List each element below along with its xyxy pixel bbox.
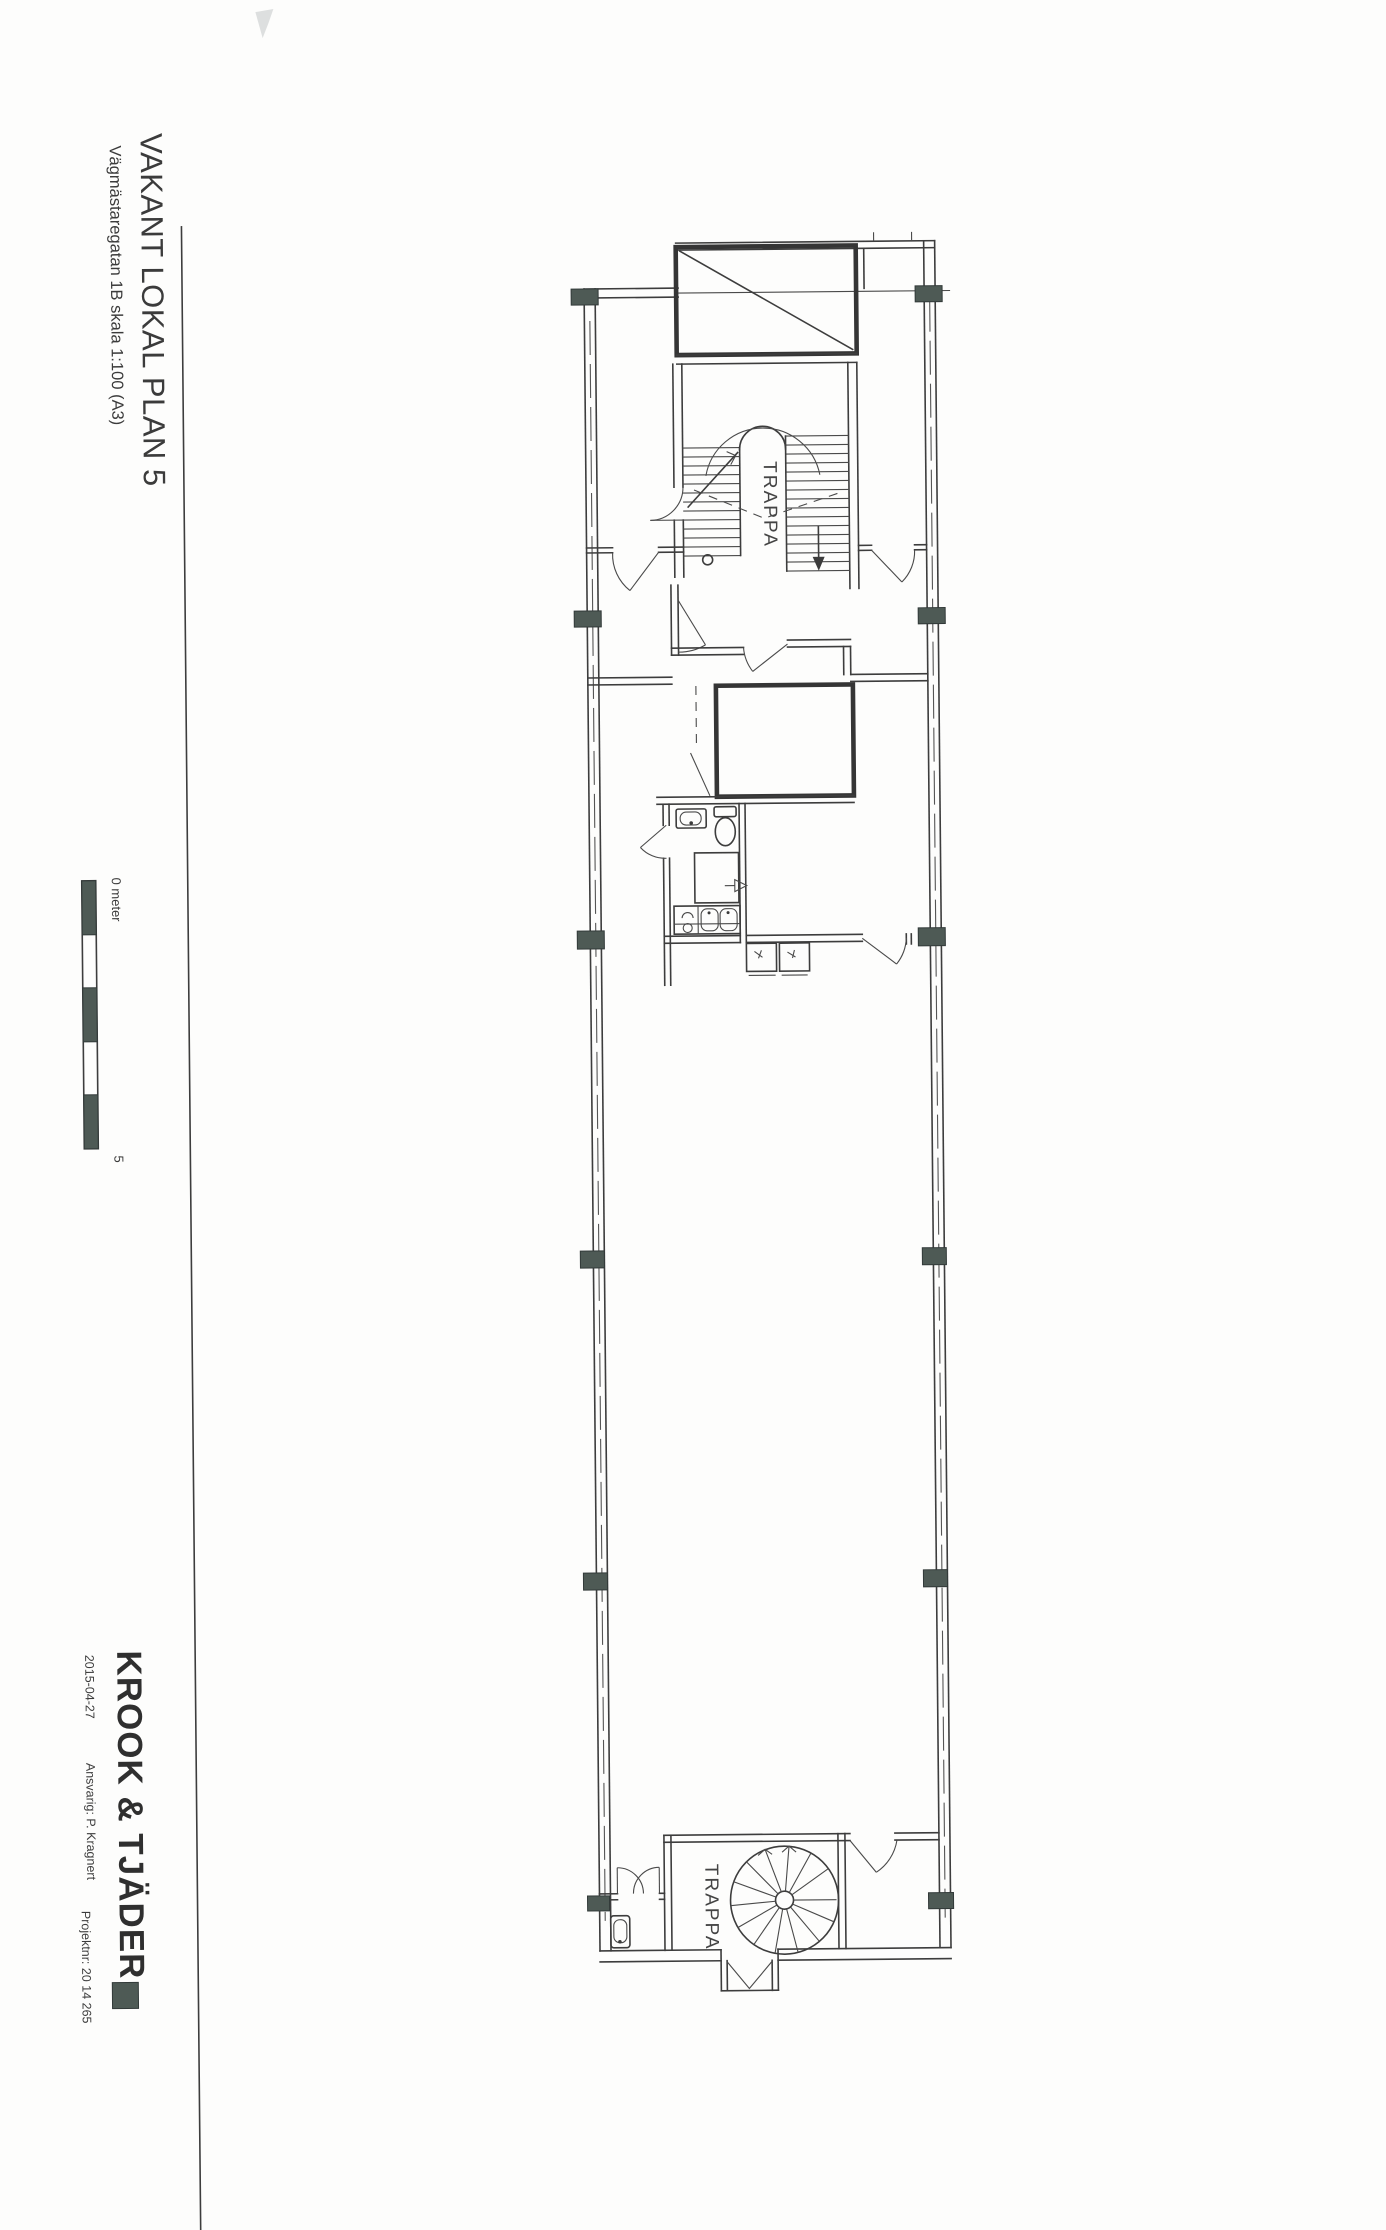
closet-door-leaf	[691, 753, 710, 796]
scale-bar-segment	[84, 1095, 99, 1149]
scale-bar: 0 meter 5	[82, 877, 127, 1163]
door-hall-left	[650, 487, 683, 520]
entry-vestibule	[721, 1949, 778, 1991]
column	[580, 1251, 604, 1268]
column	[918, 928, 945, 946]
column	[571, 289, 598, 305]
spiral-stair-room: TRAPPA	[599, 1833, 940, 1992]
u-stair: TRAPPA	[649, 353, 859, 590]
company-name: KROOK & TJÄDER	[109, 1650, 151, 1979]
scale-bar-segment	[83, 988, 98, 1042]
footer-responsible: Ansvarig: P. Kragnert	[83, 1763, 98, 1881]
column	[923, 1570, 947, 1587]
door-vestibule	[678, 600, 705, 652]
door-right-room	[872, 550, 915, 582]
door-symbol-arrow	[725, 879, 747, 891]
company-logo-square	[112, 1982, 138, 2008]
service-sink	[611, 1916, 630, 1948]
plan-drawing-svg: VAKANT LOKAL PLAN 5 Vägmästaregatan 1B s…	[0, 0, 1386, 2230]
door-left-room	[613, 552, 659, 590]
footer-project-number: Projektnr: 20 14 265	[79, 1911, 94, 2024]
wc-kitchen	[640, 802, 912, 986]
door-spiral-room	[850, 1840, 897, 1872]
page-title: VAKANT LOKAL PLAN 5	[134, 133, 172, 487]
stairwell-top-label: TRAPPA	[759, 461, 781, 548]
stairwell-bottom-label: TRAPPA	[700, 1864, 722, 1951]
footer-block: KROOK & TJÄDER 2015-04-27 Ansvarig: P. K…	[76, 1650, 152, 2023]
interior-partitions-upper	[587, 545, 929, 805]
column	[577, 931, 604, 949]
inner-room	[716, 684, 854, 796]
stair-direction-arrow	[813, 557, 825, 571]
wc-toilet	[714, 807, 736, 846]
footer-date: 2015-04-27	[82, 1655, 97, 1719]
column	[915, 286, 942, 302]
spiral-stair	[730, 1846, 839, 1955]
scale-end-label: 5	[111, 1155, 126, 1162]
scanned-floor-plan-page: VAKANT LOKAL PLAN 5 Vägmästaregatan 1B s…	[0, 0, 1386, 2230]
floor-plan: TRAPPA	[571, 231, 967, 1992]
sliding-opening-dashed	[696, 686, 697, 748]
column	[587, 1896, 609, 1911]
column	[574, 611, 601, 627]
column	[922, 1248, 946, 1265]
column	[583, 1573, 607, 1590]
kitchen-island	[694, 853, 738, 903]
title-divider-line	[181, 227, 200, 2230]
elevator-shaft	[676, 245, 857, 355]
scan-smudge	[255, 9, 273, 38]
column	[918, 608, 945, 624]
page-subtitle: Vägmästaregatan 1B skala 1:100 (A3)	[106, 145, 127, 425]
column	[928, 1893, 953, 1909]
kitchen-counter	[674, 906, 740, 935]
pantry-tables	[746, 943, 809, 976]
wc-sink	[676, 809, 706, 828]
door-inner-hall	[743, 644, 787, 671]
door-kitchen-wall	[862, 938, 906, 964]
scale-zero-label: 0 meter	[109, 877, 124, 922]
title-block: VAKANT LOKAL PLAN 5 Vägmästaregatan 1B s…	[106, 133, 172, 487]
door-wc	[640, 825, 666, 858]
scale-bar-segment	[82, 881, 97, 935]
